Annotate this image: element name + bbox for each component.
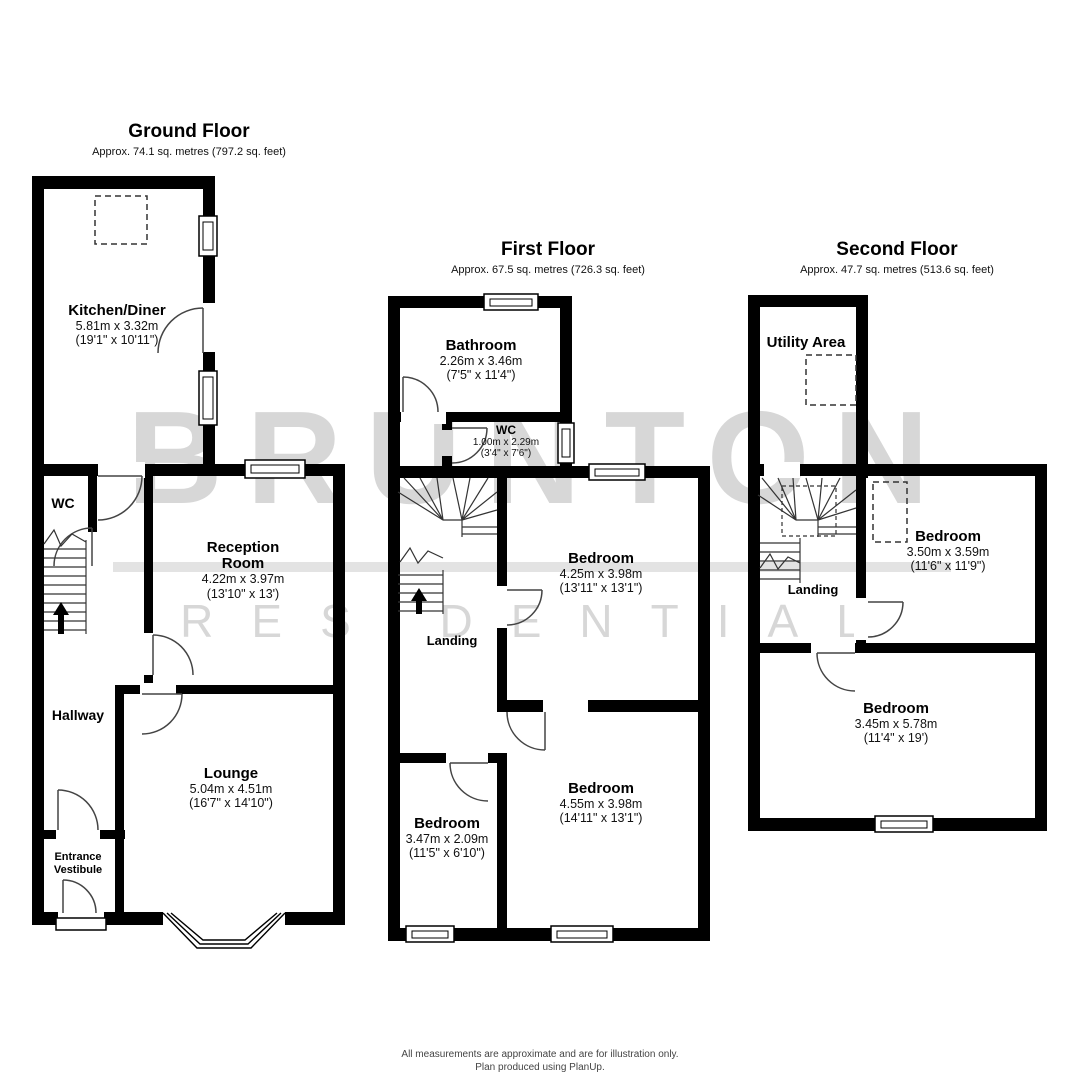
room-dims-imperial: (14'11" x 13'1") xyxy=(560,811,643,825)
room-label-bedroom-front-second: Bedroom 3.50m x 3.59m (11'6" x 11'9") xyxy=(907,529,990,574)
second-floor-title: Second Floor xyxy=(800,240,994,261)
room-label-bedroom-middle: Bedroom 4.25m x 3.98m (13'11" x 13'1") xyxy=(560,551,643,596)
first-floor-title: First Floor xyxy=(451,240,645,261)
room-name: Bedroom xyxy=(855,701,938,717)
first-floor-title-block: First Floor Approx. 67.5 sq. metres (726… xyxy=(451,240,645,276)
second-floor-area: Approx. 47.7 sq. metres (513.6 sq. feet) xyxy=(800,264,994,276)
room-name: Reception Room xyxy=(186,540,301,572)
room-dims-metric: 3.50m x 3.59m xyxy=(907,545,990,559)
room-dims-metric: 3.45m x 5.78m xyxy=(855,717,938,731)
room-name: WC xyxy=(473,424,539,437)
room-dims-imperial: (7'5" x 11'4") xyxy=(440,368,523,382)
room-name: Kitchen/Diner xyxy=(68,303,166,319)
room-label-first-wc: WC 1.00m x 2.29m (3'4" x 7'6") xyxy=(473,424,539,460)
kitchen-skylight-dashed xyxy=(95,196,147,244)
room-dims-imperial: (19'1" x 10'11") xyxy=(68,333,166,347)
room-dims-imperial: (13'10" x 13') xyxy=(186,587,301,601)
room-dims-metric: 1.00m x 2.29m xyxy=(473,437,539,449)
floorplan-page: BRUNTON RESIDENTIAL xyxy=(0,0,1080,1080)
room-name: Landing xyxy=(427,634,478,648)
room-label-lounge: Lounge 5.04m x 4.51m (16'7" x 14'10") xyxy=(189,766,273,811)
room-dims-metric: 4.25m x 3.98m xyxy=(560,567,643,581)
room-label-kitchen-diner: Kitchen/Diner 5.81m x 3.32m (19'1" x 10'… xyxy=(68,303,166,348)
ground-floor-title: Ground Floor xyxy=(92,122,286,143)
room-label-first-landing: Landing xyxy=(427,634,478,648)
room-label-ground-wc: WC xyxy=(51,496,74,511)
room-label-bedroom-rear-first: Bedroom 4.55m x 3.98m (14'11" x 13'1") xyxy=(560,781,643,826)
bedroom-front-dashed-area xyxy=(873,482,907,542)
room-name: Bedroom xyxy=(560,781,643,797)
second-floor-plan xyxy=(748,295,1047,832)
disclaimer-line1: All measurements are approximate and are… xyxy=(401,1048,678,1061)
room-dims-metric: 4.55m x 3.98m xyxy=(560,797,643,811)
second-stairs xyxy=(758,478,856,583)
room-dims-metric: 5.81m x 3.32m xyxy=(68,319,166,333)
room-dims-metric: 2.26m x 3.46m xyxy=(440,354,523,368)
room-dims-metric: 3.47m x 2.09m xyxy=(406,832,489,846)
room-name: Lounge xyxy=(189,766,273,782)
room-name: Bathroom xyxy=(440,338,523,354)
ground-floor-area: Approx. 74.1 sq. metres (797.2 sq. feet) xyxy=(92,146,286,158)
stairs-up-arrow-ground xyxy=(53,602,69,634)
room-dims-metric: 5.04m x 4.51m xyxy=(189,782,273,796)
ground-floor-title-block: Ground Floor Approx. 74.1 sq. metres (79… xyxy=(92,122,286,158)
first-floor-area: Approx. 67.5 sq. metres (726.3 sq. feet) xyxy=(451,264,645,276)
room-dims-imperial: (13'11" x 13'1") xyxy=(560,581,643,595)
room-dims-imperial: (16'7" x 14'10") xyxy=(189,796,273,810)
room-name: WC xyxy=(51,496,74,511)
second-floor-title-block: Second Floor Approx. 47.7 sq. metres (51… xyxy=(800,240,994,276)
room-name: Bedroom xyxy=(560,551,643,567)
room-dims-imperial: (11'5" x 6'10") xyxy=(406,846,489,860)
room-name: Landing xyxy=(788,583,839,597)
room-name: Entrance Vestibule xyxy=(38,851,118,877)
room-label-hallway: Hallway xyxy=(52,708,104,723)
second-walls xyxy=(748,295,1047,831)
room-label-bedroom-small: Bedroom 3.47m x 2.09m (11'5" x 6'10") xyxy=(406,816,489,861)
room-name: Bedroom xyxy=(907,529,990,545)
ground-door-openings xyxy=(56,303,285,927)
room-name: Bedroom xyxy=(406,816,489,832)
room-name: Hallway xyxy=(52,708,104,723)
disclaimer-line2: Plan produced using PlanUp. xyxy=(401,1061,678,1074)
room-dims-imperial: (11'4" x 19') xyxy=(855,731,938,745)
room-dims-imperial: (11'6" x 11'9") xyxy=(907,559,990,573)
room-label-reception-room: Reception Room 4.22m x 3.97m (13'10" x 1… xyxy=(186,540,301,601)
ground-doors xyxy=(54,308,203,913)
room-label-entrance-vestibule: Entrance Vestibule xyxy=(38,851,118,877)
room-label-bathroom: Bathroom 2.26m x 3.46m (7'5" x 11'4") xyxy=(440,338,523,383)
room-dims-imperial: (3'4" x 7'6") xyxy=(473,448,539,460)
disclaimer: All measurements are approximate and are… xyxy=(401,1048,678,1074)
room-dims-metric: 4.22m x 3.97m xyxy=(186,572,301,586)
room-label-bedroom-rear-second: Bedroom 3.45m x 5.78m (11'4" x 19') xyxy=(855,701,938,746)
utility-dashed-area xyxy=(806,355,856,405)
room-name: Utility Area xyxy=(761,335,851,351)
stairs-headroom-dashed xyxy=(782,486,836,536)
stairs-up-arrow-first xyxy=(411,588,427,614)
first-stairs xyxy=(398,478,497,614)
ground-stairs xyxy=(44,530,86,634)
room-label-utility-area: Utility Area xyxy=(761,335,851,351)
second-windows xyxy=(875,816,933,832)
second-door-openings xyxy=(764,462,868,655)
room-label-second-landing: Landing xyxy=(788,583,839,597)
